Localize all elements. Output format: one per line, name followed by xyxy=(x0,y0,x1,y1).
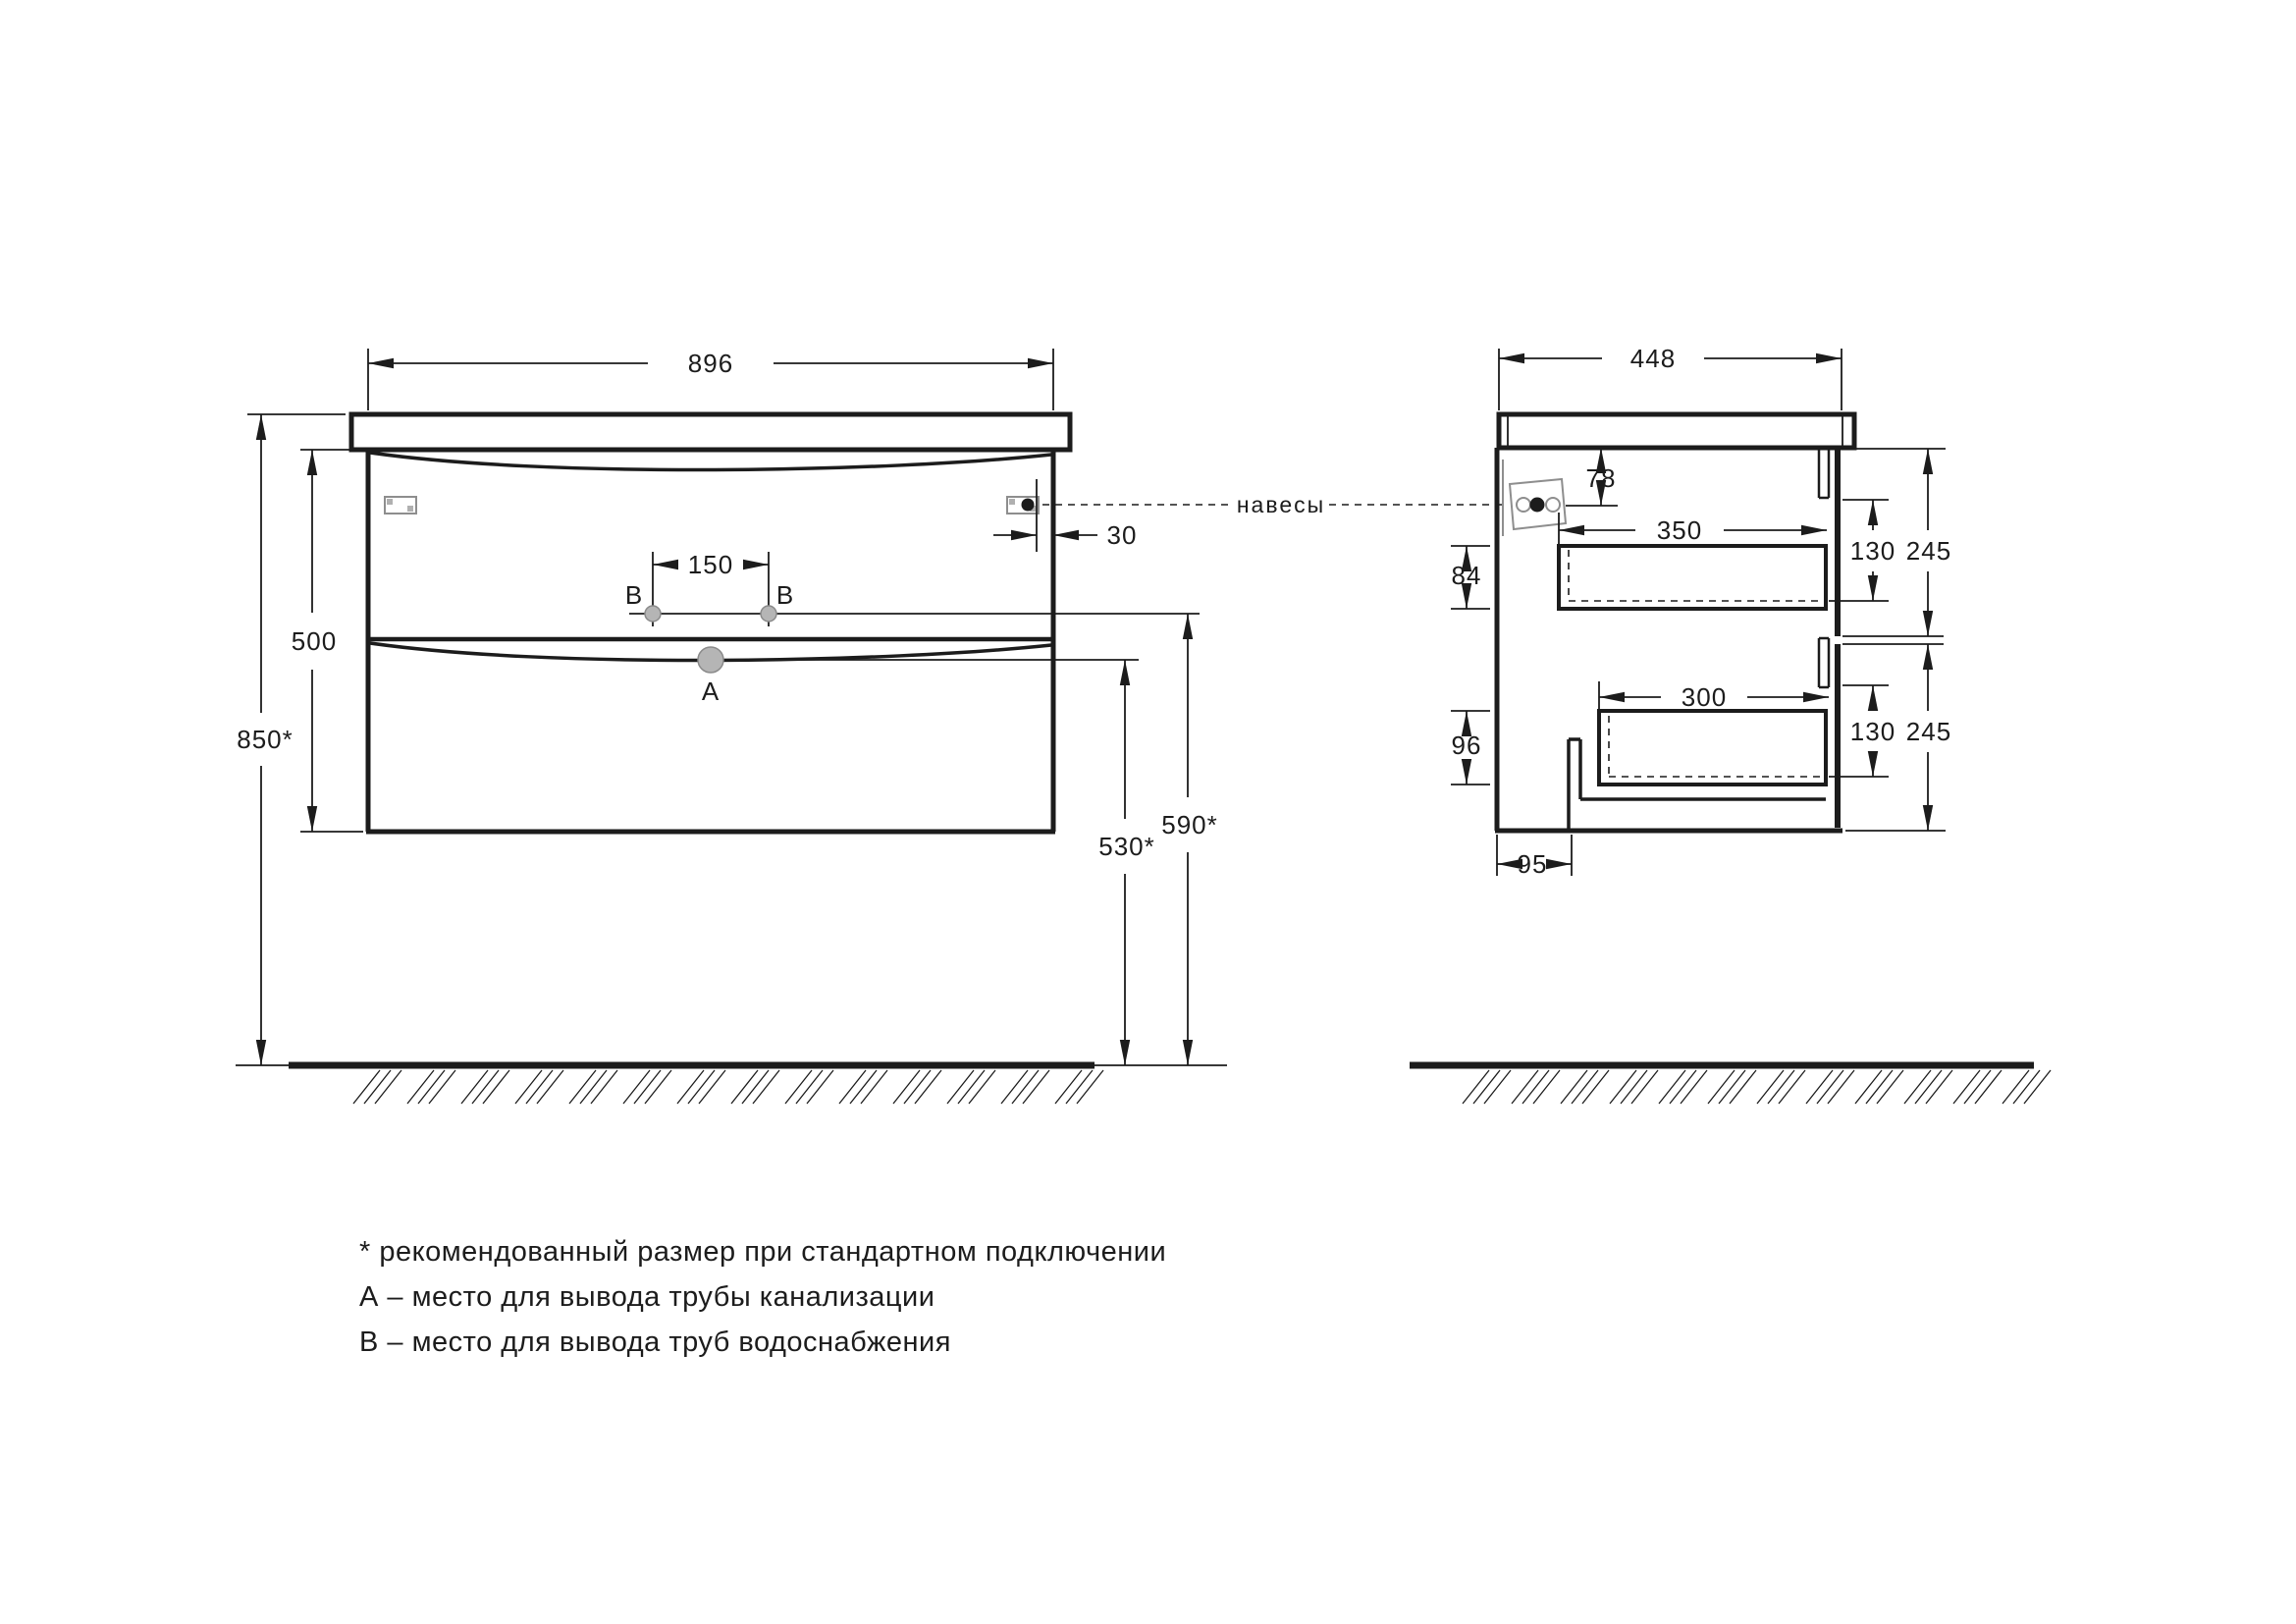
svg-text:500: 500 xyxy=(292,626,337,656)
dim-drain-height: 530* xyxy=(1098,660,1155,1065)
svg-text:300: 300 xyxy=(1682,682,1727,712)
dim-bottom-drawer-inner-height: 96 xyxy=(1451,711,1490,785)
footnote-recommended: * рекомендованный размер при стандартном… xyxy=(359,1229,1166,1274)
dim-water-height: 590* xyxy=(1161,614,1218,1065)
dim-side-depth: 448 xyxy=(1499,344,1842,410)
faucet-holes: 150 В В xyxy=(625,550,1200,626)
svg-text:30: 30 xyxy=(1107,520,1138,550)
side-countertop xyxy=(1499,414,1854,448)
svg-text:448: 448 xyxy=(1630,344,1676,373)
dim-front-carcass-height: 500 xyxy=(292,450,363,832)
drain-hole-a xyxy=(698,647,723,673)
front-view: 896 500 850* 150 В В xyxy=(237,349,1218,1065)
dim-bottom-drawer-depth: 300 xyxy=(1599,681,1829,713)
hanger-right xyxy=(1007,497,1039,514)
svg-text:78: 78 xyxy=(1586,463,1617,493)
ground-right xyxy=(1410,1065,2051,1104)
footnote-water: В – место для вывода труб водоснабжения xyxy=(359,1320,1166,1365)
water-hole-right xyxy=(761,606,776,622)
dim-top-drawer-depth: 350 xyxy=(1559,513,1827,548)
svg-text:96: 96 xyxy=(1452,731,1482,760)
dim-top-drawer-inner-height: 84 xyxy=(1451,546,1490,609)
side-handle-profile-top xyxy=(1819,448,1829,498)
side-view: 448 78 350 84 130 xyxy=(1451,344,1951,879)
svg-text:130: 130 xyxy=(1850,717,1896,746)
front-basin-curve-top xyxy=(370,453,1051,470)
dim-hanger-offset: 30 xyxy=(993,520,1137,550)
side-pipe-recess xyxy=(1569,739,1580,831)
hanger-callout: навесы xyxy=(1042,492,1504,517)
svg-text:590*: 590* xyxy=(1161,810,1218,839)
technical-drawing-page: 896 500 850* 150 В В xyxy=(0,0,2296,1624)
label-drain: А xyxy=(702,677,720,706)
dim-hanger-top-offset: 78 xyxy=(1586,448,1617,506)
vanity-dimension-drawing: 896 500 850* 150 В В xyxy=(0,0,2296,1624)
svg-text:896: 896 xyxy=(688,349,733,378)
dim-front-mount-height: 850* xyxy=(237,414,346,1065)
side-drawer-top xyxy=(1559,546,1826,609)
front-countertop xyxy=(351,414,1070,450)
label-hangers: навесы xyxy=(1237,492,1325,517)
svg-text:130: 130 xyxy=(1850,536,1896,566)
footnotes: * рекомендованный размер при стандартном… xyxy=(359,1229,1166,1365)
label-water-right: В xyxy=(776,580,794,610)
hanger-left xyxy=(385,497,416,514)
water-hole-left xyxy=(645,606,661,622)
dim-faucet-spacing: 150 xyxy=(688,550,733,579)
svg-text:530*: 530* xyxy=(1098,832,1155,861)
svg-text:350: 350 xyxy=(1657,515,1702,545)
label-water-left: В xyxy=(625,580,643,610)
svg-text:245: 245 xyxy=(1906,717,1951,746)
side-drawer-bottom xyxy=(1599,711,1826,785)
svg-text:245: 245 xyxy=(1906,536,1951,566)
dim-front-width: 896 xyxy=(368,349,1053,410)
dim-back-recess-depth: 95 xyxy=(1497,835,1572,879)
ground-left xyxy=(236,1065,1227,1104)
svg-text:84: 84 xyxy=(1452,561,1482,590)
svg-text:850*: 850* xyxy=(237,725,294,754)
svg-text:95: 95 xyxy=(1518,849,1548,879)
side-handle-profile-bottom xyxy=(1819,638,1829,687)
footnote-drain: А – место для вывода трубы канализации xyxy=(359,1274,1166,1320)
